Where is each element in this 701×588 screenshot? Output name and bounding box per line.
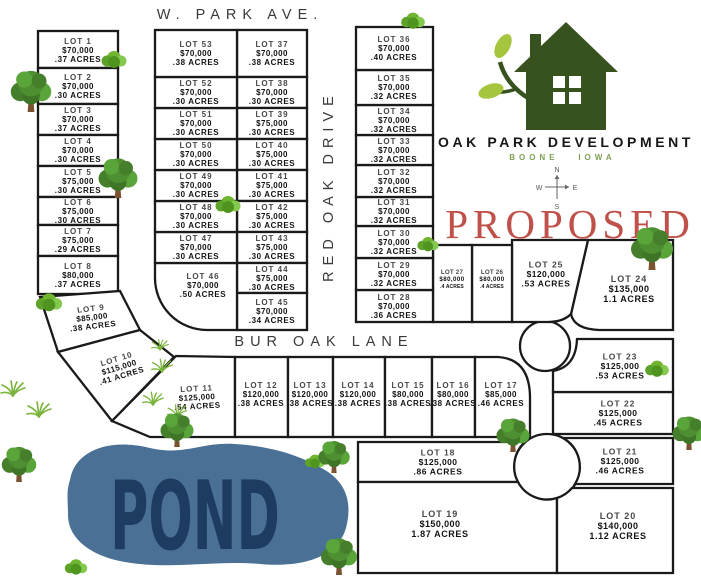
- lot-8-acres-label: .37 ACRES: [55, 280, 102, 289]
- lot-50-id-label: LOT 50: [179, 141, 212, 150]
- street-label-bur-oak-lane: BUR OAK LANE: [234, 334, 413, 350]
- svg-text:LOT 12$120,000.38 ACRES: LOT 12$120,000.38 ACRES: [238, 381, 285, 408]
- svg-text:LOT 18$125,000.86 ACRES: LOT 18$125,000.86 ACRES: [413, 448, 462, 477]
- lot-3-acres-label: .37 ACRES: [55, 124, 102, 133]
- lot-19-id-label: LOT 19: [422, 509, 459, 519]
- svg-text:LOT 14$120,000.38 ACRES: LOT 14$120,000.38 ACRES: [335, 381, 382, 408]
- lot-1-price-label: $70,000: [62, 46, 94, 55]
- lot-41-id-label: LOT 41: [255, 172, 288, 181]
- lot-43-parcel: LOT 43$75,000.30 ACRES: [237, 232, 307, 263]
- lot-46-price-label: $70,000: [187, 281, 219, 290]
- lot-2-acres-label: .30 ACRES: [55, 91, 102, 100]
- lot-48-id-label: LOT 48: [179, 203, 212, 212]
- lot-44-parcel: LOT 44$75,000.30 ACRES: [237, 263, 307, 293]
- lot-51-acres-label: .30 ACRES: [173, 128, 220, 137]
- lot-16-acres-label: .38 ACRES: [430, 399, 477, 408]
- lot-20-acres-label: 1.12 ACRES: [589, 531, 646, 541]
- lot-20-id-label: LOT 20: [600, 511, 637, 521]
- lot-49-price-label: $70,000: [180, 181, 212, 190]
- compass-s: S: [555, 204, 560, 211]
- lot-20-price-label: $140,000: [598, 521, 639, 531]
- lot-13-acres-label: .38 ACRES: [287, 399, 334, 408]
- lot-48-acres-label: .30 ACRES: [173, 221, 220, 230]
- lot-28-parcel: LOT 28$70,000.36 ACRES: [356, 290, 433, 322]
- svg-text:LOT 27$80,000.4 ACRES: LOT 27$80,000.4 ACRES: [439, 269, 464, 290]
- lot-35-price-label: $70,000: [378, 83, 410, 92]
- lot-53-acres-label: .38 ACRES: [173, 58, 220, 67]
- lot-8-price-label: $80,000: [62, 271, 94, 280]
- lot-19-parcel: LOT 19$150,0001.87 ACRES: [358, 482, 557, 573]
- compass-n: N: [554, 167, 559, 174]
- lot-52-price-label: $70,000: [180, 88, 212, 97]
- svg-text:LOT 22$125,000.45 ACRES: LOT 22$125,000.45 ACRES: [593, 399, 642, 428]
- lot-50-parcel: LOT 50$70,000.30 ACRES: [155, 139, 237, 170]
- lot-1-id-label: LOT 1: [64, 37, 92, 46]
- lot-24-acres-label: 1.1 ACRES: [603, 294, 655, 304]
- lot-31-parcel: LOT 31$70,000.32 ACRES: [356, 197, 433, 226]
- lot-3-id-label: LOT 3: [64, 106, 92, 115]
- lot-17-price-label: $85,000: [485, 390, 517, 399]
- lot-51-price-label: $70,000: [180, 119, 212, 128]
- lot-13-parcel: LOT 13$120,000.38 ACRES: [287, 357, 334, 437]
- lot-44-id-label: LOT 44: [255, 265, 288, 274]
- tree-icon: [318, 441, 350, 473]
- lot-12-acres-label: .38 ACRES: [238, 399, 285, 408]
- lot-33-price-label: $70,000: [378, 146, 410, 155]
- lot-49-acres-label: .30 ACRES: [173, 190, 220, 199]
- lot-23-acres-label: .53 ACRES: [595, 370, 644, 380]
- lot-16-parcel: LOT 16$80,000.38 ACRES: [430, 357, 477, 437]
- lot-1-acres-label: .37 ACRES: [55, 55, 102, 64]
- grass-icon: [1, 381, 25, 396]
- compass-w: W: [536, 185, 543, 192]
- lot-33-id-label: LOT 33: [377, 137, 410, 146]
- lot-32-price-label: $70,000: [378, 177, 410, 186]
- lot-24-id-label: LOT 24: [611, 274, 648, 284]
- lot-5-id-label: LOT 5: [64, 168, 92, 177]
- tree-icon: [161, 413, 194, 447]
- lot-34-id-label: LOT 34: [377, 107, 410, 116]
- lot-4-acres-label: .30 ACRES: [55, 155, 102, 164]
- lot-51-id-label: LOT 51: [179, 110, 212, 119]
- lot-32-parcel: LOT 32$70,000.32 ACRES: [356, 165, 433, 197]
- lot-8-parcel: LOT 8$80,000.37 ACRES: [38, 256, 118, 294]
- lot-52-acres-label: .30 ACRES: [173, 97, 220, 106]
- lot-37-acres-label: .38 ACRES: [249, 58, 296, 67]
- lot-35-id-label: LOT 35: [377, 74, 410, 83]
- lot-12-id-label: LOT 12: [244, 381, 277, 390]
- lot-2-parcel: LOT 2$70,000.30 ACRES: [38, 68, 118, 104]
- lot-35-parcel: LOT 35$70,000.32 ACRES: [356, 70, 433, 105]
- lot-38-acres-label: .30 ACRES: [249, 97, 296, 106]
- lot-26-price-label: $80,000: [479, 276, 504, 283]
- lot-8-id-label: LOT 8: [64, 262, 92, 271]
- lot-6-acres-label: .30 ACRES: [55, 216, 102, 225]
- lot-24-price-label: $135,000: [609, 284, 650, 294]
- lot-42-price-label: $75,000: [256, 212, 288, 221]
- lot-34-price-label: $70,000: [378, 116, 410, 125]
- lot-50-price-label: $70,000: [180, 150, 212, 159]
- plat-map-svg: LOT 1$70,000.37 ACRESLOT 2$70,000.30 ACR…: [0, 0, 701, 588]
- brand-location: BOONE IOWA: [509, 153, 615, 162]
- lot-18-parcel: LOT 18$125,000.86 ACRES: [358, 442, 525, 482]
- lot-28-acres-label: .36 ACRES: [371, 311, 418, 320]
- lot-46-id-label: LOT 46: [186, 272, 219, 281]
- lot-49-parcel: LOT 49$70,000.30 ACRES: [155, 170, 237, 201]
- lot-41-price-label: $75,000: [256, 181, 288, 190]
- lot-29-id-label: LOT 29: [377, 261, 410, 270]
- lot-27-price-label: $80,000: [439, 276, 464, 283]
- lot-26-id-label: LOT 26: [481, 269, 504, 276]
- lot-15-price-label: $80,000: [392, 390, 424, 399]
- lot-19-acres-label: 1.87 ACRES: [411, 529, 468, 539]
- lot-28-price-label: $70,000: [378, 302, 410, 311]
- lot-40-parcel: LOT 40$75,000.30 ACRES: [237, 139, 307, 170]
- lot-30-id-label: LOT 30: [377, 229, 410, 238]
- lot-41-parcel: LOT 41$75,000.30 ACRES: [237, 170, 307, 201]
- lot-51-parcel: LOT 51$70,000.30 ACRES: [155, 108, 237, 139]
- lot-31-acres-label: .32 ACRES: [371, 216, 418, 225]
- lot-4-price-label: $70,000: [62, 146, 94, 155]
- lot-44-acres-label: .30 ACRES: [249, 283, 296, 292]
- lot-53-parcel: LOT 53$70,000.38 ACRES: [155, 30, 237, 77]
- lot-53-price-label: $70,000: [180, 49, 212, 58]
- lot-40-id-label: LOT 40: [255, 141, 288, 150]
- lot-49-id-label: LOT 49: [179, 172, 212, 181]
- lot-35-acres-label: .32 ACRES: [371, 92, 418, 101]
- lot-27-parcel: LOT 27$80,000.4 ACRES: [433, 245, 472, 322]
- lot-7-price-label: $75,000: [62, 236, 94, 245]
- lot-44-price-label: $75,000: [256, 274, 288, 283]
- lot-22-parcel: LOT 22$125,000.45 ACRES: [553, 392, 673, 434]
- lot-29-acres-label: .32 ACRES: [371, 279, 418, 288]
- lot-42-acres-label: .30 ACRES: [249, 221, 296, 230]
- lot-47-id-label: LOT 47: [179, 234, 212, 243]
- lot-36-parcel: LOT 36$70,000.40 ACRES: [356, 27, 433, 70]
- lot-13-price-label: $120,000: [292, 390, 329, 399]
- lot-53-id-label: LOT 53: [179, 40, 212, 49]
- lot-40-price-label: $75,000: [256, 150, 288, 159]
- lot-29-price-label: $70,000: [378, 270, 410, 279]
- lot-5-acres-label: .30 ACRES: [55, 186, 102, 195]
- lot-32-acres-label: .32 ACRES: [371, 186, 418, 195]
- cul-de-sac-circle: [520, 321, 570, 371]
- lot-45-id-label: LOT 45: [255, 298, 288, 307]
- lot-2-price-label: $70,000: [62, 82, 94, 91]
- tree-icon: [321, 538, 357, 575]
- lot-38-id-label: LOT 38: [255, 79, 288, 88]
- lot-37-id-label: LOT 37: [255, 40, 288, 49]
- lot-34-acres-label: .32 ACRES: [371, 125, 418, 134]
- svg-text:LOT 21$125,000.46 ACRES: LOT 21$125,000.46 ACRES: [595, 447, 644, 476]
- lot-6-parcel: LOT 6$75,000.30 ACRES: [38, 197, 118, 225]
- lot-30-acres-label: .32 ACRES: [371, 247, 418, 256]
- lot-37-price-label: $70,000: [256, 49, 288, 58]
- lot-36-acres-label: .40 ACRES: [371, 53, 418, 62]
- svg-text:LOT 25$120,000.53 ACRES: LOT 25$120,000.53 ACRES: [521, 260, 570, 289]
- lot-5-price-label: $75,000: [62, 177, 94, 186]
- lot-15-id-label: LOT 15: [391, 381, 424, 390]
- lot-34-parcel: LOT 34$70,000.32 ACRES: [356, 105, 433, 135]
- lot-14-price-label: $120,000: [340, 390, 377, 399]
- lot-7-acres-label: .29 ACRES: [55, 245, 102, 254]
- lot-20-parcel: LOT 20$140,0001.12 ACRES: [557, 488, 673, 573]
- street-label-red-oak-drive: RED OAK DRIVE: [321, 90, 337, 282]
- pond-label: POND: [110, 462, 280, 572]
- lot-16-price-label: $80,000: [437, 390, 469, 399]
- lot-26-acres-label: .4 ACRES: [480, 284, 504, 290]
- lot-7-id-label: LOT 7: [64, 227, 92, 236]
- lot-30-price-label: $70,000: [378, 238, 410, 247]
- lot-48-price-label: $70,000: [180, 212, 212, 221]
- lot-27-id-label: LOT 27: [441, 269, 464, 276]
- lot-27-acres-label: .4 ACRES: [440, 284, 464, 290]
- lot-47-parcel: LOT 47$70,000.30 ACRES: [155, 232, 237, 263]
- lot-17-acres-label: .46 ACRES: [478, 399, 525, 408]
- bush-icon: [401, 13, 425, 29]
- lot-41-acres-label: .30 ACRES: [249, 190, 296, 199]
- street-label-w-park-ave: W. PARK AVE.: [157, 7, 324, 23]
- lot-52-id-label: LOT 52: [179, 79, 212, 88]
- lot-29-parcel: LOT 29$70,000.32 ACRES: [356, 258, 433, 290]
- plat-map: LOT 1$70,000.37 ACRESLOT 2$70,000.30 ACR…: [0, 0, 701, 588]
- lot-46-parcel: LOT 46$70,000.50 ACRES: [155, 263, 237, 330]
- lot-45-acres-label: .34 ACRES: [249, 316, 296, 325]
- lot-39-id-label: LOT 39: [255, 110, 288, 119]
- lot-6-id-label: LOT 6: [64, 198, 92, 207]
- developer-logo: OAK PARK DEVELOPMENT BOONE IOWA PROPOSED: [438, 22, 695, 247]
- lot-42-parcel: LOT 42$75,000.30 ACRES: [237, 201, 307, 232]
- lot-12-parcel: LOT 12$120,000.38 ACRES: [235, 357, 288, 437]
- brand-state: IOWA: [578, 153, 615, 162]
- lot-31-price-label: $70,000: [378, 207, 410, 216]
- lot-15-parcel: LOT 15$80,000.38 ACRES: [385, 357, 432, 437]
- brand-name: OAK PARK DEVELOPMENT: [438, 134, 694, 150]
- lot-39-price-label: $75,000: [256, 119, 288, 128]
- lot-39-parcel: LOT 39$75,000.30 ACRES: [237, 108, 307, 139]
- lot-43-price-label: $75,000: [256, 243, 288, 252]
- lot-19-price-label: $150,000: [420, 519, 461, 529]
- house-logo-icon: [476, 22, 618, 130]
- lot-14-parcel: LOT 14$120,000.38 ACRES: [333, 357, 385, 437]
- lot-32-id-label: LOT 32: [377, 168, 410, 177]
- lot-22-acres-label: .45 ACRES: [593, 417, 642, 427]
- lot-42-id-label: LOT 42: [255, 203, 288, 212]
- lot-36-id-label: LOT 36: [377, 35, 410, 44]
- lot-39-acres-label: .30 ACRES: [249, 128, 296, 137]
- lot-25-acres-label: .53 ACRES: [521, 278, 570, 288]
- lot-38-parcel: LOT 38$70,000.30 ACRES: [237, 77, 307, 108]
- lot-28-id-label: LOT 28: [377, 293, 410, 302]
- lot-26-parcel: LOT 26$80,000.4 ACRES: [472, 245, 512, 322]
- lot-4-id-label: LOT 4: [64, 137, 92, 146]
- lot-14-acres-label: .38 ACRES: [335, 399, 382, 408]
- lot-40-acres-label: .30 ACRES: [249, 159, 296, 168]
- lot-15-acres-label: .38 ACRES: [385, 399, 432, 408]
- compass-e: E: [573, 185, 578, 192]
- lot-7-parcel: LOT 7$75,000.29 ACRES: [38, 225, 118, 256]
- lot-18-acres-label: .86 ACRES: [413, 466, 462, 476]
- lot-37-parcel: LOT 37$70,000.38 ACRES: [237, 30, 307, 77]
- lot-45-price-label: $70,000: [256, 307, 288, 316]
- svg-text:LOT 13$120,000.38 ACRES: LOT 13$120,000.38 ACRES: [287, 381, 334, 408]
- lot-33-parcel: LOT 33$70,000.32 ACRES: [356, 135, 433, 165]
- grass-icon: [27, 402, 51, 417]
- tree-icon: [2, 447, 37, 482]
- svg-text:LOT 26$80,000.4 ACRES: LOT 26$80,000.4 ACRES: [479, 269, 504, 290]
- lot-47-price-label: $70,000: [180, 243, 212, 252]
- lot-21-parcel: LOT 21$125,000.46 ACRES: [563, 438, 673, 484]
- lot-3-price-label: $70,000: [62, 115, 94, 124]
- lot-50-acres-label: .30 ACRES: [173, 159, 220, 168]
- lot-31-id-label: LOT 31: [377, 198, 410, 207]
- lot-14-id-label: LOT 14: [341, 381, 374, 390]
- lot-3-parcel: LOT 3$70,000.37 ACRES: [38, 104, 118, 135]
- lot-16-id-label: LOT 16: [436, 381, 469, 390]
- lot-46-acres-label: .50 ACRES: [180, 290, 227, 299]
- lot-21-acres-label: .46 ACRES: [595, 465, 644, 475]
- lot-45-parcel: LOT 45$70,000.34 ACRES: [237, 293, 307, 330]
- lot-13-id-label: LOT 13: [293, 381, 326, 390]
- bush-icon: [65, 559, 88, 574]
- brand-city: BOONE: [509, 153, 558, 162]
- lot-43-acres-label: .30 ACRES: [249, 252, 296, 261]
- tree-icon: [673, 416, 701, 450]
- lot-36-price-label: $70,000: [378, 44, 410, 53]
- lot-38-price-label: $70,000: [256, 88, 288, 97]
- lot-17-id-label: LOT 17: [484, 381, 517, 390]
- lot-43-id-label: LOT 43: [255, 234, 288, 243]
- lot-12-price-label: $120,000: [243, 390, 280, 399]
- svg-text:LOT 24$135,0001.1 ACRES: LOT 24$135,0001.1 ACRES: [603, 274, 655, 304]
- lot-47-acres-label: .30 ACRES: [173, 252, 220, 261]
- svg-text:LOT 23$125,000.53 ACRES: LOT 23$125,000.53 ACRES: [595, 352, 644, 381]
- lot-6-price-label: $75,000: [62, 207, 94, 216]
- lot-33-acres-label: .32 ACRES: [371, 155, 418, 164]
- lot-2-id-label: LOT 2: [64, 73, 92, 82]
- lot-52-parcel: LOT 52$70,000.30 ACRES: [155, 77, 237, 108]
